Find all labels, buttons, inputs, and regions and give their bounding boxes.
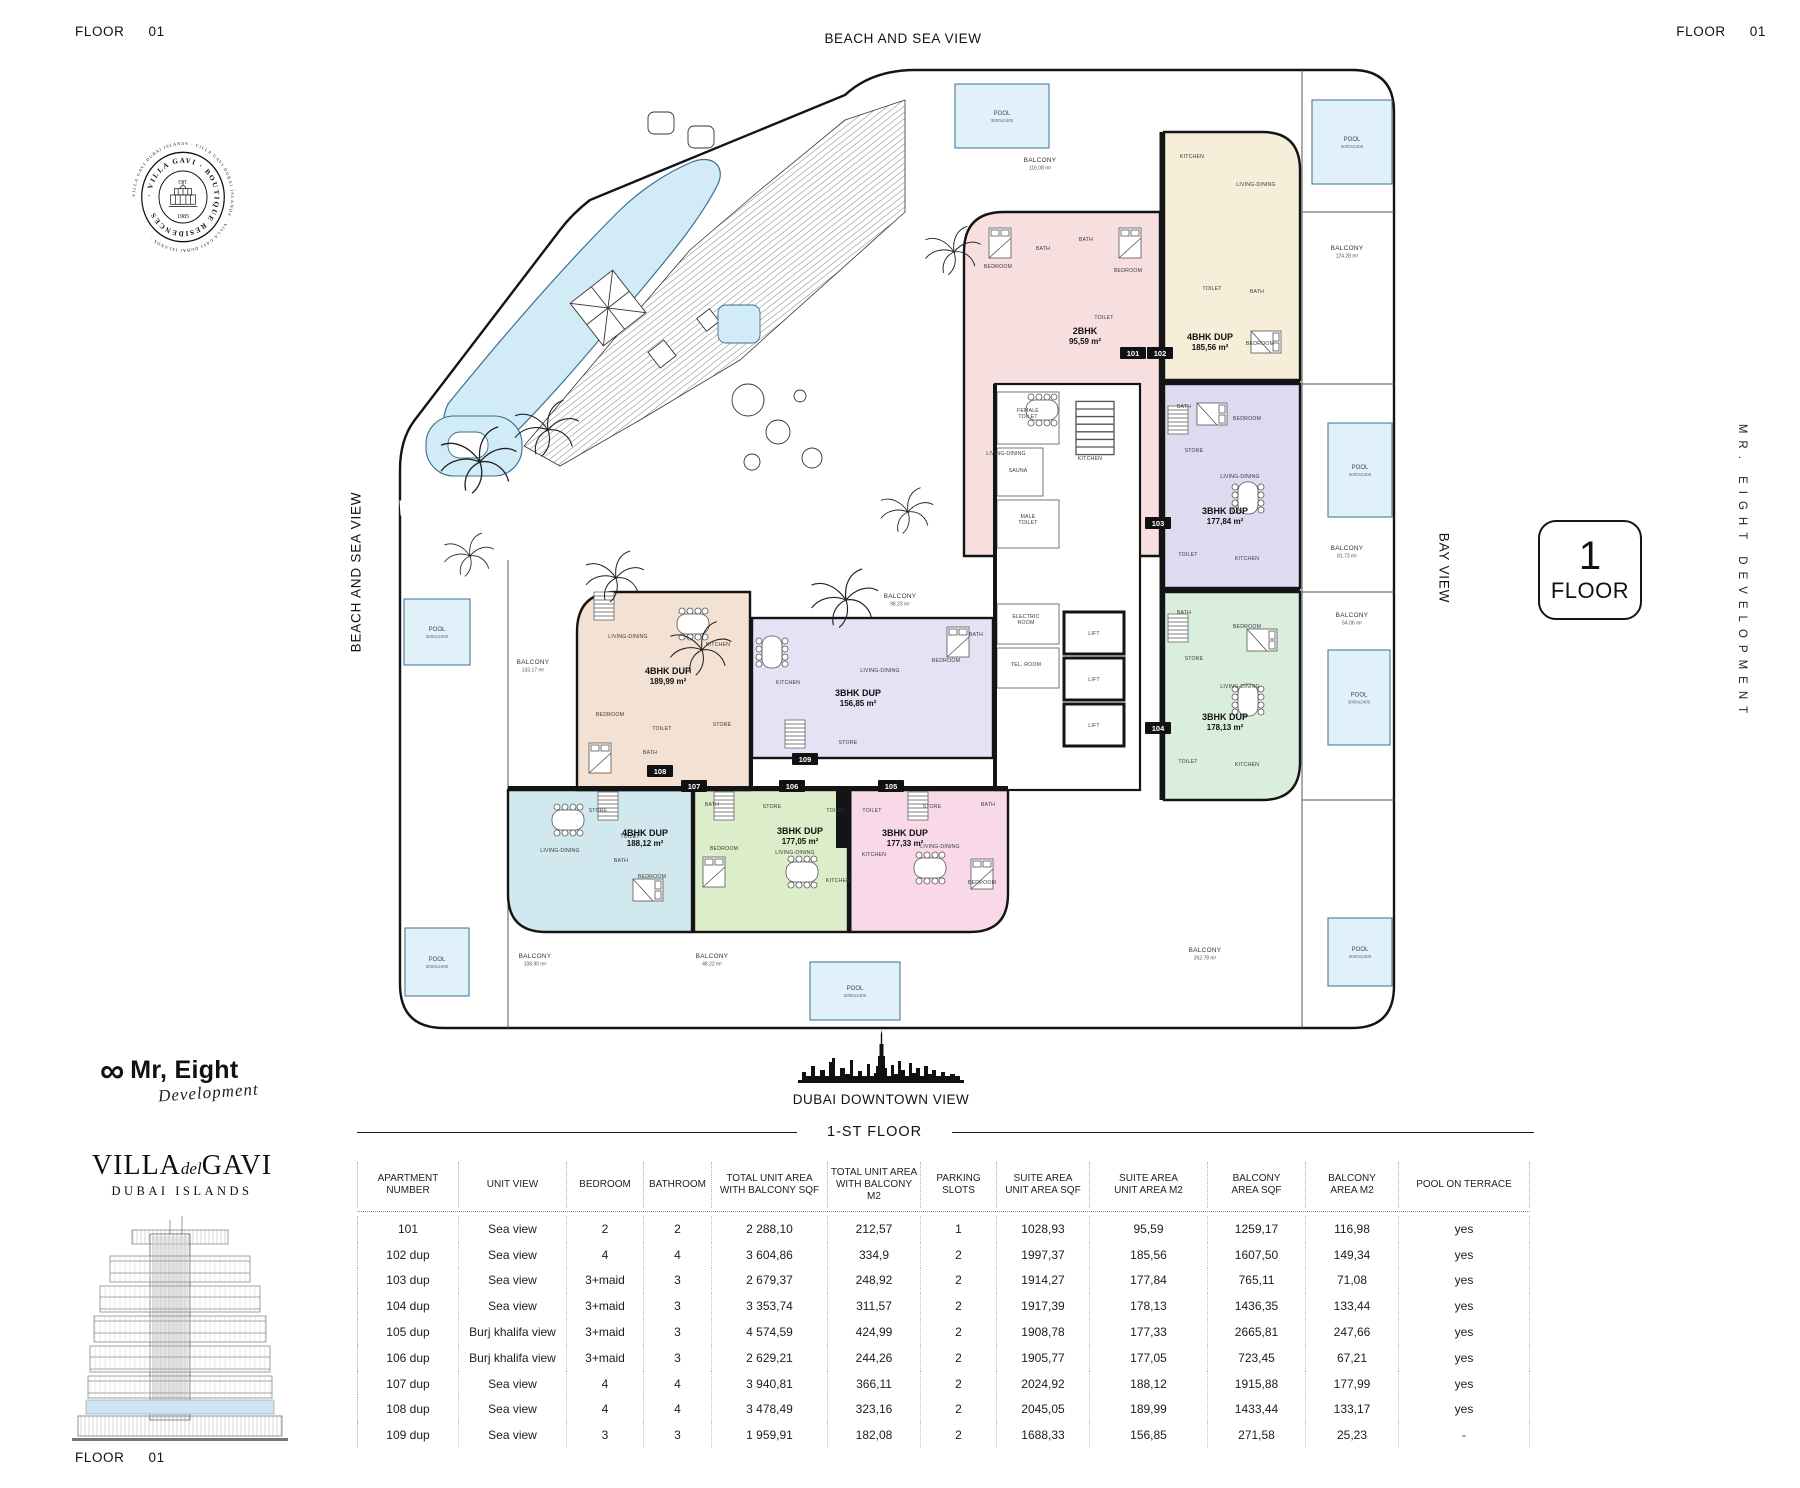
unit-type-label: 3BHK DUP <box>777 826 823 836</box>
unit-area-label: 189,99 m² <box>650 677 687 686</box>
room-label: TOILET <box>1178 552 1198 558</box>
del-word: del <box>181 1159 202 1178</box>
table-cell: 188,12 <box>1090 1371 1208 1397</box>
table-cell: 3 <box>644 1422 712 1448</box>
balcony-label: BALCONY <box>1024 157 1057 164</box>
column-header: UNIT VIEW <box>459 1162 567 1208</box>
table-cell: Sea view <box>459 1293 567 1319</box>
table-cell: 104 dup <box>357 1293 459 1319</box>
pool-island <box>448 432 488 458</box>
table-cell: 1997,37 <box>997 1242 1090 1268</box>
table-cell: 106 dup <box>357 1345 459 1371</box>
brochure-page: FLOOR01 BEACH AND SEA VIEW FLOOR01 FLOOR… <box>0 0 1800 1488</box>
room-label: TOILET <box>826 808 846 814</box>
room-label: LIFT <box>1088 677 1100 683</box>
table-cell: 109 dup <box>357 1422 459 1448</box>
table-cell: 2 <box>567 1216 644 1242</box>
column-header: BEDROOM <box>567 1162 644 1208</box>
table-cell: 247,66 <box>1306 1319 1399 1345</box>
room-label: LIVING-DINING <box>1220 684 1260 690</box>
room-label: LIVING-DINING <box>775 850 815 856</box>
column-header: BALCONYAREA SQF <box>1208 1162 1306 1208</box>
villa-title: VILLAdelGAVI <box>82 1150 282 1182</box>
table-cell: 1688,33 <box>997 1422 1090 1448</box>
table-cell: 4 <box>644 1242 712 1268</box>
table-cell: 133,44 <box>1306 1293 1399 1319</box>
unit-area-label: 156,85 m² <box>840 699 877 708</box>
room-label: MALETOILET <box>1018 514 1038 526</box>
room-label: TOILET <box>1094 315 1114 321</box>
balcony-label: BALCONY <box>1331 245 1364 252</box>
table-cell: 2 <box>921 1293 997 1319</box>
table-cell: 3+maid <box>567 1345 644 1371</box>
room-label: BEDROOM <box>638 874 666 880</box>
column-header: TOTAL UNIT AREAWITH BALCONY SQF <box>712 1162 828 1208</box>
table-cell: 2 <box>921 1242 997 1268</box>
table-cell: 182,08 <box>828 1422 921 1448</box>
room-label: KITCHEN <box>1078 456 1102 462</box>
table-cell: 3 <box>644 1293 712 1319</box>
table-cell: 177,84 <box>1090 1268 1208 1294</box>
building-illustration <box>68 1212 292 1444</box>
room-label: STORE <box>589 808 608 814</box>
table-cell: 323,16 <box>828 1397 921 1423</box>
table-cell: 271,58 <box>1208 1422 1306 1448</box>
table-cell: 4 <box>567 1242 644 1268</box>
unit-area-label: 188,12 m² <box>627 839 664 848</box>
table-cell: 25,23 <box>1306 1422 1399 1448</box>
table-cell: 1 959,91 <box>712 1422 828 1448</box>
room-label: LIFT <box>1088 723 1100 729</box>
table-cell: 95,59 <box>1090 1216 1208 1242</box>
balcony-area: 54.06 m² <box>1342 621 1362 627</box>
table-cell: Sea view <box>459 1422 567 1448</box>
villa-subtitle: DUBAI ISLANDS <box>82 1184 282 1199</box>
room-label: LIVING-DINING <box>540 848 580 854</box>
room-label: STORE <box>1185 448 1204 454</box>
table-cell: 67,21 <box>1306 1345 1399 1371</box>
gavi-word: GAVI <box>202 1150 272 1181</box>
unit-type-label: 3BHK DUP <box>882 828 928 838</box>
table-cell: Burj khalifa view <box>459 1345 567 1371</box>
room-label: BATH <box>1177 404 1191 410</box>
table-cell: 1436,35 <box>1208 1293 1306 1319</box>
room-label: STORE <box>923 804 942 810</box>
table-cell: 2 <box>921 1371 997 1397</box>
table-cell: 103 dup <box>357 1268 459 1294</box>
table-cell: 2 <box>921 1268 997 1294</box>
room-label: BATH <box>643 750 657 756</box>
table-cell: Burj khalifa view <box>459 1319 567 1345</box>
table-cell: 1 <box>921 1216 997 1242</box>
stairwell <box>1076 401 1114 454</box>
room-label: KITCHEN <box>826 878 850 884</box>
column-header: TOTAL UNIT AREAWITH BALCONY M2 <box>828 1162 921 1208</box>
pool-dims: 3000x2400 <box>1349 472 1372 477</box>
unit-tag-number: 108 <box>654 767 667 776</box>
unit-tag-number: 109 <box>799 755 812 764</box>
room-label: STORE <box>1185 656 1204 662</box>
table-cell: 248,92 <box>828 1268 921 1294</box>
table-cell: 765,11 <box>1208 1268 1306 1294</box>
pool-dims: 3000x2400 <box>426 964 449 969</box>
room-label: STORE <box>713 722 732 728</box>
table-cell: 2665,81 <box>1208 1319 1306 1345</box>
room-label: BEDROOM <box>710 846 738 852</box>
column-header: POOL ON TERRACE <box>1399 1162 1530 1208</box>
table-cell: 212,57 <box>828 1216 921 1242</box>
table-cell: 3+maid <box>567 1268 644 1294</box>
pool-label: POOL <box>994 111 1011 117</box>
balcony-area: 124.28 m² <box>1336 254 1359 260</box>
pool-label: POOL <box>429 627 446 633</box>
table-cell: 3 <box>644 1319 712 1345</box>
table-cell: 3 <box>567 1422 644 1448</box>
room-label: BATH <box>1036 246 1050 252</box>
balcony-label: BALCONY <box>884 593 917 600</box>
unit-area-label: 177,05 m² <box>782 837 819 846</box>
table-cell: Sea view <box>459 1216 567 1242</box>
room-label: KITCHEN <box>1235 762 1259 768</box>
downtown-view-text: DUBAI DOWNTOWN VIEW <box>793 1092 970 1107</box>
room-label: TOILET <box>1178 759 1198 765</box>
table-cell: 4 <box>644 1397 712 1423</box>
table-cell: 2 <box>921 1397 997 1423</box>
table-cell: 133,17 <box>1306 1397 1399 1423</box>
table-cell: 366,11 <box>828 1371 921 1397</box>
room-label: LIVING-DINING <box>986 451 1026 457</box>
table-cell: 1908,78 <box>997 1319 1090 1345</box>
table-cell: 1917,39 <box>997 1293 1090 1319</box>
balcony-area: 48.22 m² <box>702 962 722 968</box>
room-label: TOILET <box>652 726 672 732</box>
table-cell: 3 604,86 <box>712 1242 828 1268</box>
table-cell: 311,57 <box>828 1293 921 1319</box>
room-label: BEDROOM <box>984 264 1012 270</box>
mr-eight-name: Mr, Eight <box>130 1056 238 1085</box>
table-cell: Sea view <box>459 1268 567 1294</box>
balcony-area: 98.23 m² <box>890 602 910 608</box>
room-label: LIFT <box>1088 631 1100 637</box>
unit-area-label: 95,59 m² <box>1069 337 1101 346</box>
table-cell: yes <box>1399 1268 1530 1294</box>
balcony-label: BALCONY <box>1336 612 1369 619</box>
table-cell: yes <box>1399 1242 1530 1268</box>
divider-line-left <box>357 1132 797 1133</box>
balcony-label: BALCONY <box>519 953 552 960</box>
table-cell: 102 dup <box>357 1242 459 1268</box>
room-label: KITCHEN <box>706 642 730 648</box>
table-cell: 4 <box>644 1371 712 1397</box>
table-cell: 1914,27 <box>997 1268 1090 1294</box>
room-label: KITCHEN <box>776 680 800 686</box>
units-table: APARTMENTNUMBERUNIT VIEWBEDROOMBATHROOMT… <box>357 1162 1530 1448</box>
table-cell: 177,99 <box>1306 1371 1399 1397</box>
balcony-area: 81.73 m² <box>1337 554 1357 560</box>
balcony-area: 108.90 m² <box>524 962 547 968</box>
table-cell: 3 <box>644 1268 712 1294</box>
table-cell: 4 <box>567 1371 644 1397</box>
table-cell: 3 <box>644 1345 712 1371</box>
downtown-view-label: DUBAI DOWNTOWN VIEW <box>793 1092 970 1107</box>
room-label: BEDROOM <box>1114 268 1142 274</box>
table-cell: 116,98 <box>1306 1216 1399 1242</box>
table-cell: Sea view <box>459 1242 567 1268</box>
pool-label: POOL <box>429 957 446 963</box>
room-label: BATH <box>969 632 983 638</box>
unit-type-label: 3BHK DUP <box>1202 712 1248 722</box>
table-cell: 1433,44 <box>1208 1397 1306 1423</box>
table-cell: yes <box>1399 1397 1530 1423</box>
room-label: KITCHEN <box>862 852 886 858</box>
table-cell: 2 679,37 <box>712 1268 828 1294</box>
table-cell: - <box>1399 1422 1530 1448</box>
unit-type-label: 4BHK DUP <box>645 666 691 676</box>
room-label: TEL. ROOM <box>1011 662 1041 668</box>
villa-logo: VILLAdelGAVI DUBAI ISLANDS <box>82 1150 282 1199</box>
unit-tag-number: 102 <box>1154 349 1167 358</box>
table-cell: 2024,92 <box>997 1371 1090 1397</box>
pool-label: POOL <box>1352 947 1369 953</box>
table-cell: 3 353,74 <box>712 1293 828 1319</box>
room-label: BEDROOM <box>1233 624 1261 630</box>
pool-dims: 3000x2400 <box>844 993 867 998</box>
table-cell: 2 <box>921 1345 997 1371</box>
column-header: PARKINGSLOTS <box>921 1162 997 1208</box>
unit-area-label: 177,84 m² <box>1207 517 1244 526</box>
table-cell: 2045,05 <box>997 1397 1090 1423</box>
pool-label: POOL <box>1352 465 1369 471</box>
table-cell: 424,99 <box>828 1319 921 1345</box>
unit-tag-number: 105 <box>885 782 898 791</box>
table-cell: yes <box>1399 1319 1530 1345</box>
room-label: LIVING-DINING <box>608 634 648 640</box>
room-label: KITCHEN <box>1235 556 1259 562</box>
table-cell: Sea view <box>459 1371 567 1397</box>
table-cell: 177,33 <box>1090 1319 1208 1345</box>
table-cell: 3 478,49 <box>712 1397 828 1423</box>
section-title-divider: 1-ST FLOOR <box>357 1124 1534 1140</box>
table-cell: 3+maid <box>567 1319 644 1345</box>
unit-tag-number: 101 <box>1127 349 1140 358</box>
unit-tag-number: 106 <box>786 782 799 791</box>
unit-tag-number: 103 <box>1152 519 1165 528</box>
unit-tag-number: 104 <box>1152 724 1165 733</box>
column-header: BATHROOM <box>644 1162 712 1208</box>
room-label: TOILET <box>862 808 882 814</box>
table-cell: 1259,17 <box>1208 1216 1306 1242</box>
header-divider <box>357 1211 1530 1212</box>
room-label: TOILET <box>1202 286 1222 292</box>
balcony-label: BALCONY <box>1331 545 1364 552</box>
villa-word: VILLA <box>92 1150 181 1181</box>
room-label: STORE <box>763 804 782 810</box>
table-cell: 149,34 <box>1306 1242 1399 1268</box>
balcony-area: 133.17 m² <box>522 668 545 674</box>
room-label: BATH <box>614 858 628 864</box>
room-label: LIVING-DINING <box>920 844 960 850</box>
room-label: LIVING-DINING <box>1236 182 1276 188</box>
table-cell: 334,9 <box>828 1242 921 1268</box>
room-label: KITCHEN <box>1180 154 1204 160</box>
pool-dims: 3000x2400 <box>1341 144 1364 149</box>
table-cell: 2 <box>921 1319 997 1345</box>
room-label: BATH <box>705 802 719 808</box>
section-title: 1-ST FLOOR <box>797 1124 952 1140</box>
column-header: SUITE AREAUNIT AREA M2 <box>1090 1162 1208 1208</box>
unit-tag-number: 107 <box>688 782 701 791</box>
balcony-area: 116.08 m² <box>1029 166 1051 172</box>
room-label: BATH <box>981 802 995 808</box>
table-cell: 108 dup <box>357 1397 459 1423</box>
room-label: BATH <box>1177 610 1191 616</box>
table-cell: 71,08 <box>1306 1268 1399 1294</box>
room-label: STORE <box>839 740 858 746</box>
room-label: BEDROOM <box>1233 416 1261 422</box>
room-label: BEDROOM <box>932 658 960 664</box>
room-label: SAUNA <box>1009 468 1028 474</box>
table-cell: 177,05 <box>1090 1345 1208 1371</box>
pool-dims: 3000x2400 <box>1349 954 1372 959</box>
mr-eight-logo: ∞ Mr, Eight Development <box>100 1056 259 1103</box>
skyline-icon <box>798 1030 964 1088</box>
table-cell: 1915,88 <box>1208 1371 1306 1397</box>
pool-label: POOL <box>1351 693 1368 699</box>
table-cell: 156,85 <box>1090 1422 1208 1448</box>
table-cell: 189,99 <box>1090 1397 1208 1423</box>
table-cell: 2 288,10 <box>712 1216 828 1242</box>
table-cell: Sea view <box>459 1397 567 1423</box>
table-cell: yes <box>1399 1293 1530 1319</box>
table-cell: 4 <box>567 1397 644 1423</box>
unit-type-label: 3BHK DUP <box>835 688 881 698</box>
table-cell: 1905,77 <box>997 1345 1090 1371</box>
column-header: APARTMENTNUMBER <box>357 1162 459 1208</box>
unit-area-label: 178,13 m² <box>1207 723 1244 732</box>
room-label: BATH <box>1079 237 1093 243</box>
table-cell: yes <box>1399 1345 1530 1371</box>
table-cell: 244,26 <box>828 1345 921 1371</box>
room-label: FEMALETOILET <box>1017 408 1039 420</box>
table-cell: 2 <box>644 1216 712 1242</box>
table-cell: 105 dup <box>357 1319 459 1345</box>
unit-type-label: 4BHK DUP <box>1187 332 1233 342</box>
unit-area-label: 185,56 m² <box>1192 343 1229 352</box>
column-header: SUITE AREAUNIT AREA SQF <box>997 1162 1090 1208</box>
pool-dims: 3000x2400 <box>426 634 449 639</box>
table-cell: yes <box>1399 1216 1530 1242</box>
table-cell: 3 940,81 <box>712 1371 828 1397</box>
room-label: BATH <box>1250 289 1264 295</box>
pool-dims: 3000x2400 <box>991 118 1014 123</box>
table-cell: 107 dup <box>357 1371 459 1397</box>
room-label: LIVING-DINING <box>1220 474 1260 480</box>
unit-type-label: 2BHK <box>1073 326 1098 336</box>
table-cell: yes <box>1399 1371 1530 1397</box>
balcony-label: BALCONY <box>696 953 729 960</box>
balcony-area: 262.78 m² <box>1194 956 1217 962</box>
infinity-icon: ∞ <box>100 1057 124 1085</box>
table-cell: 101 <box>357 1216 459 1242</box>
balcony-label: BALCONY <box>517 659 550 666</box>
table-cell: 4 574,59 <box>712 1319 828 1345</box>
table-cell: 2 629,21 <box>712 1345 828 1371</box>
table-cell: 1607,50 <box>1208 1242 1306 1268</box>
room-label: BEDROOM <box>1246 341 1274 347</box>
divider-line-right <box>952 1132 1534 1133</box>
table-cell: 2 <box>921 1422 997 1448</box>
table-cell: 3+maid <box>567 1293 644 1319</box>
balcony-label: BALCONY <box>1189 947 1222 954</box>
unit-area-label: 177,33 m² <box>887 839 924 848</box>
room-label: LIVING-DINING <box>860 668 900 674</box>
unit-type-label: 3BHK DUP <box>1202 506 1248 516</box>
unit-type-label: 4BHK DUP <box>622 828 668 838</box>
table-cell: 185,56 <box>1090 1242 1208 1268</box>
pool-label: POOL <box>847 986 864 992</box>
table-cell: 178,13 <box>1090 1293 1208 1319</box>
column-header: BALCONYAREA M2 <box>1306 1162 1399 1208</box>
room-label: BEDROOM <box>968 880 996 886</box>
pool-label: POOL <box>1344 137 1361 143</box>
pool-dims: 3000x2400 <box>1348 700 1371 705</box>
room-label: BEDROOM <box>596 712 624 718</box>
table-cell: 723,45 <box>1208 1345 1306 1371</box>
table-cell: 1028,93 <box>997 1216 1090 1242</box>
